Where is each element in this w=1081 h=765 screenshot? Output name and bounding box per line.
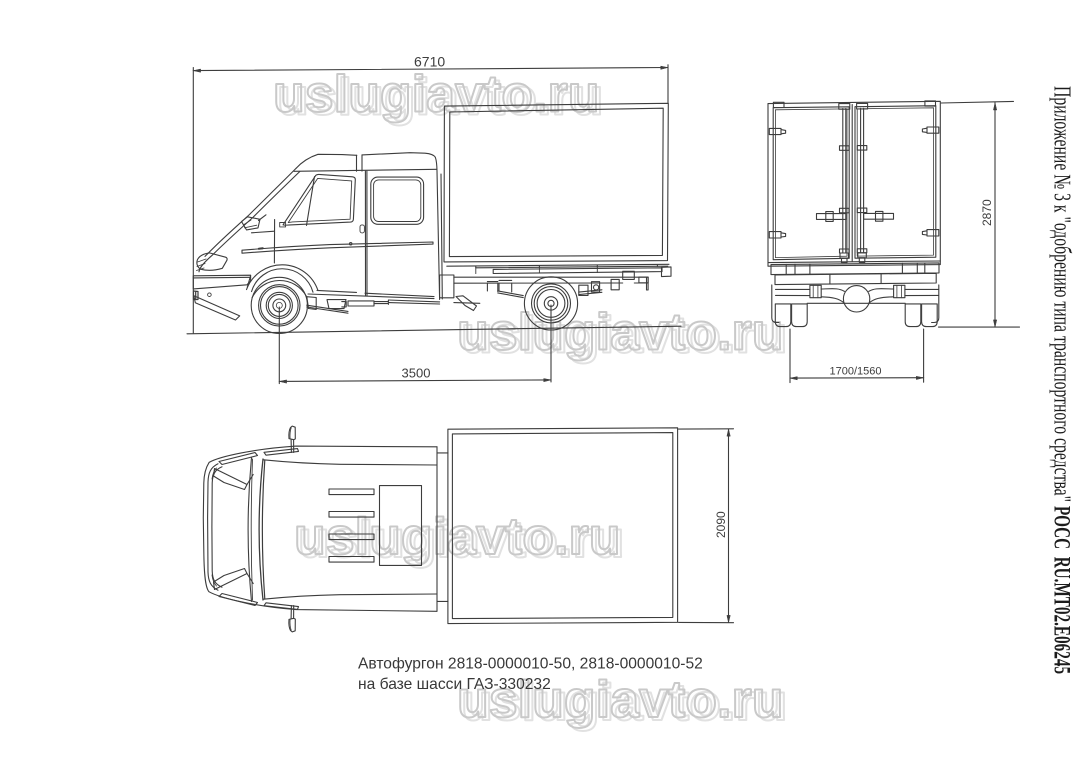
svg-text:2870: 2870 bbox=[980, 199, 994, 226]
svg-text:Приложение № 3 к "одобрению ти: Приложение № 3 к "одобрению типа транспо… bbox=[1049, 86, 1075, 674]
svg-text:uslugiavto.ru: uslugiavto.ru bbox=[273, 66, 599, 124]
svg-text:6710: 6710 bbox=[414, 54, 445, 70]
svg-text:3500: 3500 bbox=[402, 366, 431, 381]
svg-text:Автофургон 2818-0000010-50, 28: Автофургон 2818-0000010-50, 2818-0000010… bbox=[358, 656, 703, 673]
svg-text:1700/1560: 1700/1560 bbox=[830, 366, 882, 378]
svg-text:uslugiavto.ru: uslugiavto.ru bbox=[457, 304, 783, 362]
svg-text:на базе шасси ГАЗ-330232: на базе шасси ГАЗ-330232 bbox=[358, 676, 551, 693]
svg-text:2090: 2090 bbox=[714, 511, 728, 538]
